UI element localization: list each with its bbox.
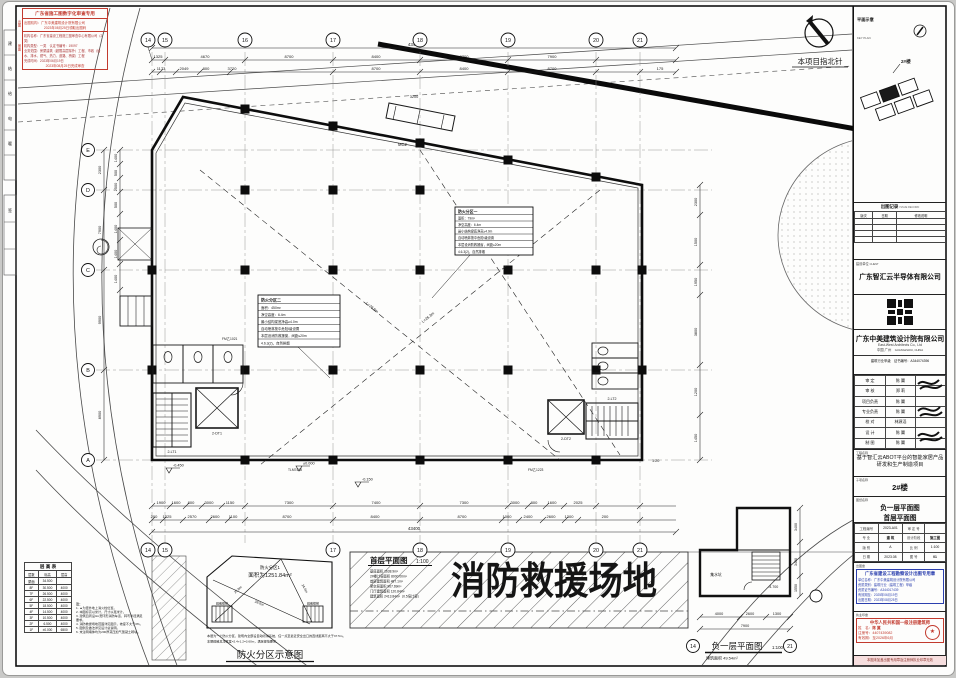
basement-texts: 集水坑 -4.700 4000 2600 1300 7900 3400 3400… (687, 523, 823, 661)
level-text: ±0.000 (303, 462, 315, 466)
structural-grid (96, 52, 712, 543)
svg-text:20: 20 (593, 38, 599, 44)
ramp-slope: 1:20 (652, 459, 659, 463)
binding-cell-label: 暖 (8, 140, 12, 146)
north-arrow-label: 本项目指北针 (798, 56, 843, 66)
floor-height-table: 层 高 表 层数标高层高 屋面34.500 8F30.5004000 7F26.… (24, 562, 72, 633)
toilet-fixture (598, 377, 608, 385)
role-label: 制 图 (855, 438, 886, 448)
record-title-en: ISSUE RECORD (900, 206, 920, 209)
svg-text:净空高度：6.4m: 净空高度：6.4m (261, 312, 286, 317)
level-text: -0.450 (173, 464, 184, 468)
floor-table-title: 层 高 表 (24, 562, 72, 570)
tb-footer: 本图未加盖出图专用章及注册师执业印章无效 (854, 656, 946, 665)
meta-label: 工程编号 (855, 524, 879, 534)
svg-text:3000: 3000 (205, 500, 215, 505)
tb-issue-seal: 出图章 广东省建设工程勘察设计出图专用章 单位名称：广东中美建筑设计院有限公司 … (854, 563, 946, 612)
meta-value: 建 筑 (878, 533, 903, 543)
role-name: 陈 翼 (885, 428, 915, 438)
svg-text:28.0m: 28.0m (254, 600, 264, 608)
svg-text:1325: 1325 (163, 514, 173, 519)
svg-text:1400: 1400 (114, 250, 118, 258)
svg-text:E: E (86, 148, 90, 154)
svg-text:2570: 2570 (188, 514, 198, 519)
keyplan-label-en: KEY PLAN (857, 36, 871, 40)
svg-text:2300: 2300 (98, 166, 102, 174)
svg-text:1400: 1400 (114, 154, 118, 162)
signature-scribbles (915, 376, 945, 449)
tb-meta: 工程编号 2023-A01 审 定 号 专 业 建 筑 设计阶段 施工图 版 别… (854, 523, 946, 563)
svg-text:本层为一个防火分区，建筑内全部设自动喷淋系统，任一点至最近安: 本层为一个防火分区，建筑内全部设自动喷淋系统，任一点至最近安全出口的直线距离不大… (207, 633, 346, 638)
svg-text:19: 19 (505, 548, 511, 554)
keyplan-label: 平面示意 (857, 17, 874, 22)
tb-client: 建设单位 CLIENT 广东智汇云半导体有限公司 (854, 260, 946, 295)
svg-text:1500: 1500 (694, 238, 698, 246)
svg-text:8700: 8700 (548, 66, 558, 71)
meta-label: 设计阶段 (903, 533, 925, 543)
basement-title: 负一层平面图 (711, 641, 762, 651)
note-line: 6. 未注明墙体均为200厚蒸压加气混凝土砌块。 (76, 630, 144, 634)
svg-text:21: 21 (787, 644, 793, 650)
svg-text:43400: 43400 (408, 526, 421, 531)
svg-text:18: 18 (417, 38, 423, 44)
elevator-tag: 2-DT1 (212, 432, 222, 436)
meta-label: 版 别 (855, 543, 879, 553)
svg-text:17: 17 (330, 38, 336, 44)
svg-text:500: 500 (114, 202, 118, 208)
svg-text:4670: 4670 (201, 54, 211, 59)
svg-text:3720: 3720 (228, 66, 238, 71)
svg-text:1900: 1900 (157, 500, 167, 505)
tb-roles: 审 定陈 翼 审 核郑 莉 项目负责陈 翼 专业负责陈 翼 校 对林源滔 设 计… (854, 375, 946, 450)
svg-text:1150: 1150 (226, 500, 235, 505)
tb-practice-seal: 执业印章 中华人民共和国一级注册建筑师 姓 名：陈 翼 注册号：44074390… (854, 612, 946, 656)
svg-text:1400: 1400 (114, 225, 118, 233)
tb-drawing-name: 图纸名称 负一层平面图 首层平面图 (854, 497, 946, 523)
svg-text:2600: 2600 (746, 612, 754, 616)
ramp-symbol (93, 239, 109, 255)
svg-text:1200: 1200 (694, 388, 698, 396)
svg-text:1550: 1550 (794, 584, 798, 592)
project-name: 基于智汇云ABOT平台的智能家居产品研发和生产制造项目 (854, 455, 946, 468)
binding-cell-label: 给 (8, 90, 12, 96)
svg-text:首层建筑面积 487.1m²: 首层建筑面积 487.1m² (370, 579, 404, 584)
svg-text:本层设消防救援窗，间距≤20m: 本层设消防救援窗，间距≤20m (261, 333, 307, 338)
drawing-name-2: 首层平面图 (854, 512, 946, 522)
svg-text:8700: 8700 (458, 514, 468, 519)
stair-tag: 2-LT1 (167, 450, 176, 454)
meta-value: 2023.08 (878, 552, 903, 562)
svg-text:175: 175 (657, 66, 664, 71)
svg-text:1100: 1100 (229, 514, 238, 519)
svg-text:门厅建筑面积 120.84m²: 门厅建筑面积 120.84m² (370, 589, 406, 594)
general-notes: 注： 1. ▲为室外地上消火栓位置。 2. 本图标高以米计，尺寸以毫米计。 3.… (76, 602, 144, 634)
meta-label: 日 期 (855, 552, 879, 562)
toilet-fixture (598, 347, 608, 355)
svg-text:200: 200 (602, 514, 609, 519)
svg-text:8400: 8400 (460, 66, 470, 71)
fire-zone-box-a: 防火分区二 面积：450m² 净空高度：6.4m 最小结构梁底净高≥4.0m 自… (258, 295, 340, 378)
svg-text:8700: 8700 (285, 54, 295, 59)
role-label: 审 定 (855, 376, 886, 386)
review-shentu-line: 业务范围：房屋建筑（超限高层除外）工程、市政（给水、排水、燃气、热力、道路、桥梁… (24, 48, 106, 58)
svg-text:2500: 2500 (114, 183, 118, 191)
toilet-fixture (224, 352, 232, 363)
fire-zone-box-b: 防火分区一 面积：79m² 净空高度：6.4m 最小结构梁底净高≥4.0m 自动… (432, 207, 533, 298)
hatch-strip (152, 556, 186, 660)
review-side-chutu: 出图 (17, 20, 22, 27)
svg-text:9900: 9900 (98, 316, 102, 324)
svg-text:1950: 1950 (694, 278, 698, 286)
dim-text-bottom: 1900 1600 800 3000 1150 7300 7400 7300 3… (151, 500, 609, 531)
svg-text:防火分区1: 防火分区1 (260, 564, 281, 571)
svg-text:D: D (86, 188, 90, 194)
svg-text:7400: 7400 (372, 500, 382, 505)
svg-text:2400: 2400 (524, 514, 534, 519)
note-line: 3. 建筑四周设4m宽环形消防车道，转弯半径满足要求。 (76, 614, 144, 622)
svg-text:800: 800 (203, 66, 210, 71)
svg-text:2600: 2600 (211, 514, 221, 519)
svg-text:21: 21 (637, 548, 643, 554)
svg-text:18: 18 (417, 548, 423, 554)
svg-text:3400: 3400 (794, 523, 798, 531)
review-stamp-title: 广东省施工图数字化审查专用 (22, 8, 108, 19)
svg-text:面积：450m²: 面积：450m² (261, 305, 282, 310)
role-label: 设 计 (855, 428, 886, 438)
stair-tag: 2-LT2 (607, 397, 616, 401)
binding-cell-label: 签 (8, 207, 12, 213)
record-col: 修改说明 (896, 212, 945, 219)
dim-text-top: 43400 1325 4670 8700 8400 8700 7900 1173… (154, 42, 665, 71)
svg-text:2#楼计容面积 8000.00m²: 2#楼计容面积 8000.00m² (370, 574, 408, 579)
elevator-tag: 2-DT2 (561, 437, 571, 441)
svg-text:1600: 1600 (548, 500, 558, 505)
fire-rescue-text: 消防救援场地 (451, 561, 657, 603)
fire-diagram-title: 防火分区示意图 (237, 649, 304, 661)
plan-scale: 1:100 (416, 559, 429, 565)
distance-label: L=26.3m (421, 311, 435, 323)
distance-label: L=28.9m (365, 301, 379, 313)
review-shentu-line: 2023年08月25日完成审查 (24, 63, 106, 68)
svg-text:C: C (86, 268, 90, 274)
building-outline (152, 97, 642, 460)
review-chutu-line: 2023年08月25日领取出图码 (24, 25, 106, 30)
svg-text:4.6.3(2)，自然排烟: 4.6.3(2)，自然排烟 (458, 249, 485, 254)
svg-text:7900: 7900 (548, 54, 558, 59)
svg-text:B: B (86, 368, 90, 374)
svg-text:架空层面积 967.69m²: 架空层面积 967.69m² (370, 584, 402, 589)
meta-value: 2023-A01 (878, 524, 903, 534)
svg-text:8700: 8700 (283, 514, 293, 519)
drawing-name-1: 负一层平面图 (854, 502, 946, 512)
svg-text:2049: 2049 (180, 66, 190, 71)
door-tag: TLM7428 (288, 468, 302, 472)
footer-text: 本图未加盖出图专用章及注册师执业印章无效 (854, 656, 946, 662)
door-tag: FM乙1223 (528, 467, 544, 472)
svg-text:2025: 2025 (574, 500, 584, 505)
svg-text:面积：79m²: 面积：79m² (458, 216, 475, 221)
svg-text:500: 500 (114, 170, 118, 176)
meta-label: 比 例 (903, 543, 925, 553)
svg-text:7300: 7300 (285, 500, 295, 505)
meta-label: 图 号 (903, 552, 925, 562)
drawing-sheet-page: { "sheet": { "review_stamp": { "title": … (0, 0, 956, 678)
client-label: 建设单位 CLIENT (854, 260, 946, 267)
role-name: 陈 翼 (885, 376, 915, 386)
svg-text:800: 800 (531, 500, 538, 505)
firm-logo (886, 298, 914, 326)
svg-text:4.6.3(2)，自然排烟: 4.6.3(2)，自然排烟 (261, 341, 290, 346)
record-title: 出图记录 (881, 204, 899, 209)
svg-text:自动喷淋按中危险Ⅰ级设置: 自动喷淋按中危险Ⅰ级设置 (458, 235, 494, 240)
svg-text:7300: 7300 (460, 500, 470, 505)
svg-text:17: 17 (330, 548, 336, 554)
svg-text:8700: 8700 (372, 66, 382, 71)
level-markers (166, 466, 369, 487)
firm-name-cn: 广东中美建筑设计院有限公司 (854, 333, 946, 343)
level-text: -0.150 (362, 478, 373, 482)
meta-value: A (878, 543, 903, 553)
registration-seal-icon: ★ (925, 625, 940, 640)
plan-title: 首层平面图 (370, 555, 408, 565)
meta-value: 01 (925, 552, 946, 562)
role-name: 郑 莉 (885, 386, 915, 396)
svg-text:面积为1251.84m²: 面积为1251.84m² (248, 571, 292, 579)
svg-text:21: 21 (637, 38, 643, 44)
basement-scale: 1:100 (772, 645, 784, 650)
basement-area: 建筑面积 49.54m² (706, 655, 738, 661)
meta-value: 1:100 (925, 543, 946, 553)
svg-text:14: 14 (690, 644, 696, 650)
svg-text:7900: 7900 (741, 624, 749, 628)
svg-text:15: 15 (162, 38, 168, 44)
entry-canopy (386, 103, 455, 131)
role-name: 林源滔 (885, 417, 915, 427)
tb-logo (854, 295, 946, 330)
tb-design-firm: 广东中美建筑设计院有限公司 East-West Architects Co., … (854, 330, 946, 375)
firm-cert: 建筑行业甲级 证书编号：A344074396 (854, 355, 946, 363)
svg-text:1000: 1000 (503, 514, 513, 519)
canopy-dim: 3200 (410, 95, 418, 99)
tb-issue-record: 出图记录 ISSUE RECORD 版次 日期 修改说明 (854, 203, 946, 260)
svg-text:建筑面积 2413.84m²（0.5倍计容）: 建筑面积 2413.84m²（0.5倍计容） (370, 594, 421, 599)
role-name: 陈 翼 (885, 407, 915, 417)
svg-text:1450: 1450 (694, 434, 698, 442)
tb-subproject: 子项名称 2#楼 (854, 477, 946, 497)
north-arrow-icon: 本项目指北针 (792, 15, 848, 67)
svg-text:基底面积 1638.9m²: 基底面积 1638.9m² (370, 569, 399, 574)
svg-text:1173: 1173 (157, 66, 166, 71)
tb-keyplan-section: 平面示意 KEY PLAN (854, 6, 946, 203)
svg-text:最小结构梁底净高≥4.0m: 最小结构梁底净高≥4.0m (458, 229, 493, 234)
title-block: 平面示意 KEY PLAN 出图记录 ISSUE RECORD 版次 日期 修改… (853, 6, 946, 666)
core-left (93, 228, 243, 447)
svg-text:200: 200 (151, 514, 158, 519)
svg-text:19: 19 (505, 38, 511, 44)
svg-text:3800: 3800 (694, 328, 698, 336)
svg-text:疏散楼梯: 疏散楼梯 (307, 601, 319, 606)
svg-text:1300: 1300 (773, 612, 781, 616)
svg-text:14: 14 (145, 548, 151, 554)
svg-text:8400: 8400 (372, 54, 382, 59)
svg-text:1325: 1325 (154, 54, 164, 59)
svg-text:防火分区二: 防火分区二 (261, 297, 281, 303)
binding-cell-label: 电 (8, 115, 12, 121)
svg-text:8900: 8900 (98, 411, 102, 419)
svg-text:20: 20 (593, 548, 599, 554)
binding-cell-label: 结 (8, 65, 12, 71)
svg-text:2300: 2300 (694, 198, 698, 206)
role-name: 陈 翼 (885, 438, 915, 448)
role-label: 项目负责 (855, 396, 886, 406)
svg-text:2600: 2600 (547, 514, 557, 519)
role-name: 陈 翼 (885, 396, 915, 406)
svg-text:集水坑: 集水坑 (710, 572, 722, 577)
svg-text:本层疏散总净宽度=2.4+1.2=3.60m，满足规范要求。: 本层疏散总净宽度=2.4+1.2=3.60m，满足规范要求。 (207, 639, 279, 644)
svg-text:800: 800 (188, 500, 195, 505)
svg-text:8700: 8700 (460, 54, 470, 59)
svg-text:防火分区一: 防火分区一 (458, 209, 478, 214)
svg-text:7900: 7900 (98, 226, 102, 234)
meta-label: 专 业 (855, 533, 879, 543)
toilet-fixture (194, 352, 202, 363)
svg-text:-4.700: -4.700 (768, 585, 778, 589)
svg-text:15: 15 (162, 548, 168, 554)
core-right (548, 343, 638, 452)
svg-text:净空高度：6.4m: 净空高度：6.4m (458, 222, 481, 227)
svg-text:1400: 1400 (114, 275, 118, 283)
role-label: 专业负责 (855, 407, 886, 417)
svg-text:1600: 1600 (172, 500, 182, 505)
columns (148, 105, 647, 465)
record-col: 日期 (873, 212, 897, 219)
record-col: 版次 (855, 212, 873, 219)
review-side-shentu: 审图 (17, 44, 22, 51)
binding-strip: 建 结 给 电 暖 签 (4, 30, 16, 275)
svg-text:本层设消防救援窗，间距≤20m: 本层设消防救援窗，间距≤20m (458, 242, 501, 247)
firm-loc: 中国 广州 GUANGZHOU, CHINA (854, 347, 946, 352)
meta-value (925, 524, 946, 534)
binding-cell-label: 建 (8, 40, 12, 46)
review-shentu-line: 机构名称：广东省建设工程施工图审查中心有限公司（2类） (24, 33, 106, 43)
canopy-tag: MC2 (398, 142, 408, 147)
svg-text:自动喷淋按中危险Ⅰ级设置: 自动喷淋按中危险Ⅰ级设置 (261, 326, 300, 331)
svg-text:疏散楼梯: 疏散楼梯 (216, 601, 228, 606)
svg-text:最小结构梁底净高≥4.0m: 最小结构梁底净高≥4.0m (261, 319, 298, 324)
svg-text:24.6m: 24.6m (301, 583, 309, 593)
svg-text:4000: 4000 (715, 612, 723, 616)
client-name: 广东智汇云半导体有限公司 (854, 271, 946, 281)
cad-drawing-canvas: 建 结 给 电 暖 签 消防救援场地 (0, 0, 956, 678)
door-tag: FM乙1021 (222, 336, 238, 341)
role-label: 校 对 (855, 417, 886, 427)
blue-stamp-line: 出图日期：2023年08月25日 (858, 597, 942, 602)
svg-text:16: 16 (242, 38, 248, 44)
digital-review-stamp: 广东省施工图数字化审查专用 出图机构：广东中美建筑设计院有限公司 2023年08… (22, 8, 108, 70)
svg-text:14: 14 (145, 38, 151, 44)
svg-text:3400: 3400 (794, 558, 798, 566)
meta-label: 审 定 号 (903, 524, 925, 534)
subproject-name: 2#楼 (854, 482, 946, 493)
tb-project: 工程名称 基于智汇云ABOT平台的智能家居产品研发和生产制造项目 (854, 450, 946, 477)
svg-text:3000: 3000 (511, 500, 521, 505)
svg-text:A: A (86, 458, 90, 464)
role-label: 审 核 (855, 386, 886, 396)
svg-text:8400: 8400 (371, 514, 381, 519)
meta-value: 施工图 (925, 533, 946, 543)
svg-text:1300: 1300 (565, 514, 575, 519)
